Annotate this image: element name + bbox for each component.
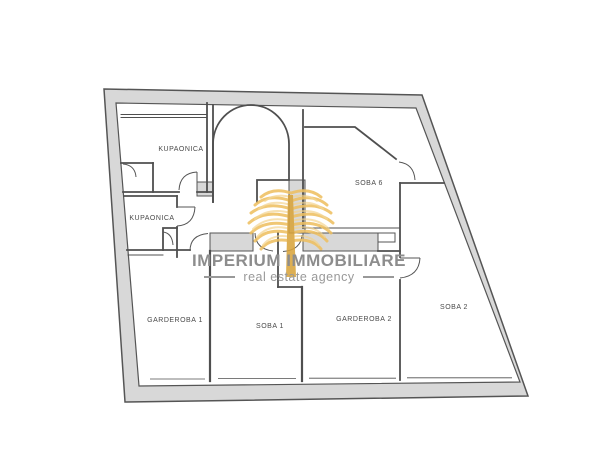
room-label-garderoba-1: GARDEROBA 1 bbox=[147, 317, 203, 324]
room-label-soba-1: SOBA 1 bbox=[256, 323, 284, 330]
room-label-garderoba-2: GARDEROBA 2 bbox=[336, 316, 392, 323]
room-label-kupaonica-lower: KUPAONICA bbox=[129, 215, 174, 222]
watermark-subtitle: real estate agency bbox=[243, 270, 354, 284]
room-label-soba-6: SOBA 6 bbox=[355, 180, 383, 187]
subtitle-left-line bbox=[204, 276, 235, 278]
watermark-title: IMPERIUM IMMOBILIARE bbox=[168, 251, 430, 271]
subtitle-right-line bbox=[363, 276, 394, 278]
watermark-subtitle-row: real estate agency bbox=[168, 270, 430, 284]
room-label-kupaonica-upper: KUPAONICA bbox=[158, 146, 203, 153]
floor-plan-page: KUPAONICA KUPAONICA SOBA 6 GARDEROBA 1 S… bbox=[0, 0, 600, 450]
room-label-soba-2: SOBA 2 bbox=[440, 304, 468, 311]
